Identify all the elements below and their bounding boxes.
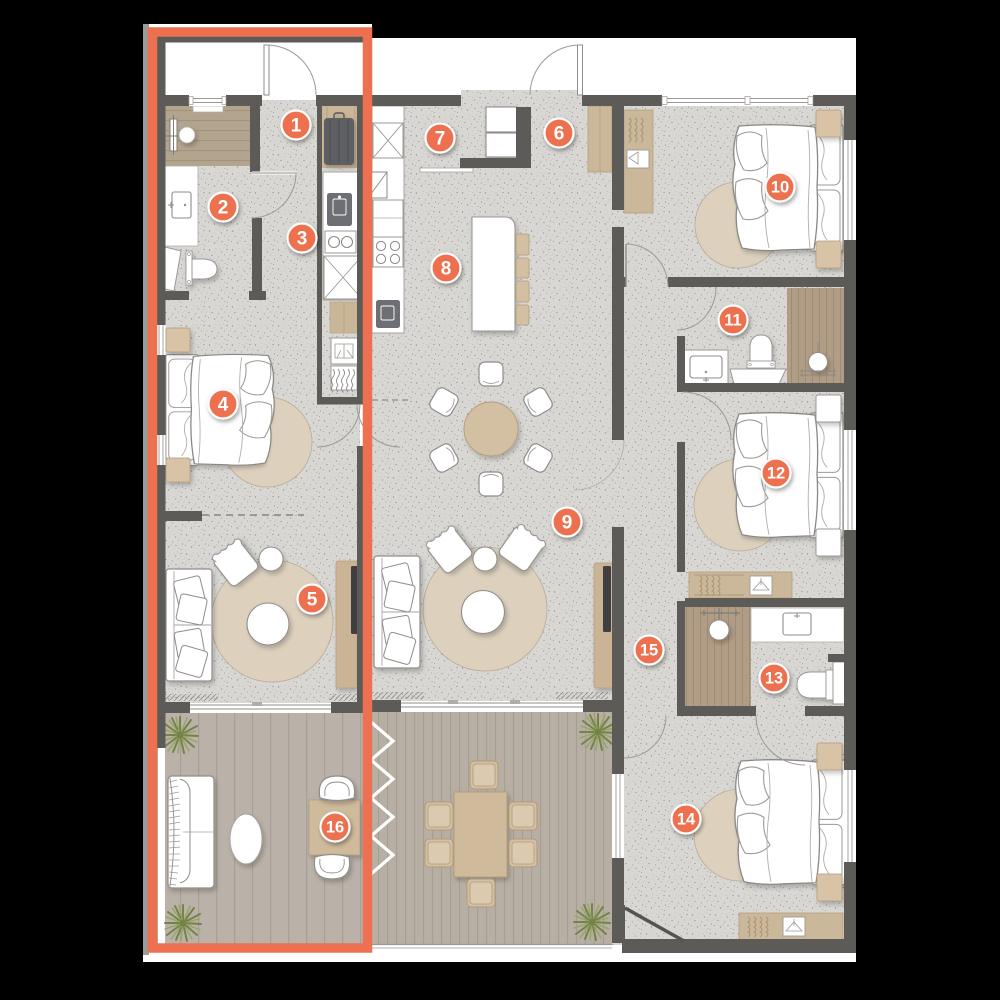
svg-text:10: 10: [771, 179, 789, 197]
svg-text:1: 1: [291, 116, 302, 137]
svg-text:16: 16: [326, 819, 344, 837]
svg-text:4: 4: [218, 395, 229, 416]
svg-text:5: 5: [307, 590, 318, 611]
svg-text:7: 7: [435, 129, 446, 150]
svg-text:13: 13: [765, 670, 783, 688]
svg-text:6: 6: [554, 124, 565, 145]
svg-text:3: 3: [297, 229, 308, 250]
svg-text:9: 9: [562, 513, 573, 534]
svg-text:15: 15: [640, 642, 658, 660]
svg-text:12: 12: [767, 465, 785, 483]
svg-text:8: 8: [441, 259, 452, 280]
svg-text:14: 14: [677, 811, 696, 829]
svg-text:2: 2: [218, 198, 229, 219]
svg-text:11: 11: [724, 312, 741, 330]
